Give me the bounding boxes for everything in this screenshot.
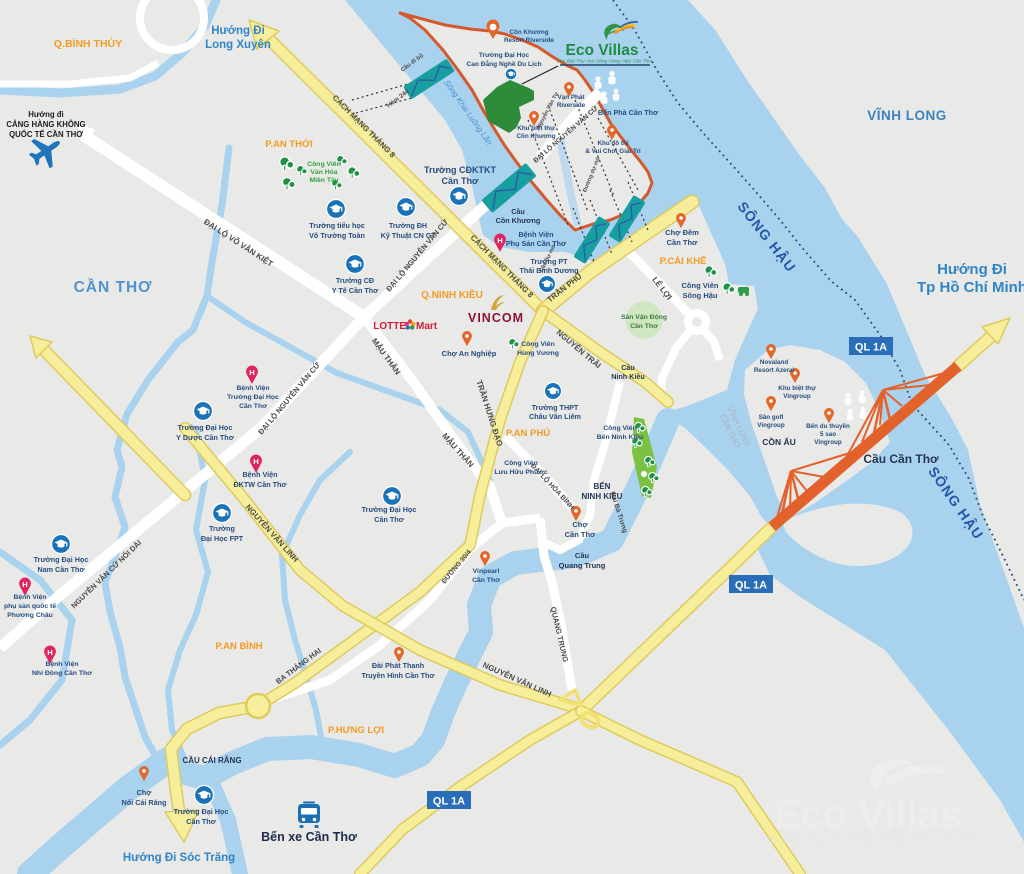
svg-text:Sân goflVingroup: Sân goflVingroup bbox=[757, 414, 785, 429]
svg-text:Mart: Mart bbox=[416, 321, 438, 332]
svg-text:QL 1A: QL 1A bbox=[433, 796, 465, 808]
svg-text:Trường tiểu họcVõ Trường Toàn: Trường tiểu họcVõ Trường Toàn bbox=[309, 221, 365, 240]
svg-text:P.AN PHÚ: P.AN PHÚ bbox=[506, 427, 550, 439]
svg-text:Bến Phà Cần Thơ: Bến Phà Cần Thơ bbox=[598, 108, 659, 117]
svg-text:Trường CĐY Tế Cần Thơ: Trường CĐY Tế Cần Thơ bbox=[332, 276, 379, 295]
svg-text:Cầu Cần Thơ: Cầu Cần Thơ bbox=[863, 452, 939, 466]
svg-text:P.CÁI KHẾ: P.CÁI KHẾ bbox=[660, 256, 707, 267]
svg-text:Chợ An Nghiệp: Chợ An Nghiệp bbox=[442, 349, 497, 358]
svg-text:Hướng Đi Sóc Trăng: Hướng Đi Sóc Trăng bbox=[123, 852, 235, 864]
svg-text:Vạn PhátRiverside: Vạn PhátRiverside bbox=[557, 94, 586, 109]
svg-text:Khu biệt thựVingroup: Khu biệt thựVingroup bbox=[778, 385, 816, 400]
svg-text:CỒN ẤU: CỒN ẤU bbox=[762, 436, 796, 447]
svg-text:LOTTE: LOTTE bbox=[373, 321, 406, 332]
svg-text:Công ViênSông Hậu: Công ViênSông Hậu bbox=[682, 281, 719, 300]
svg-text:Khu Biệt Thự Ven Sông Hàng Hiệ: Khu Biệt Thự Ven Sông Hàng Hiệu Cần Thơ bbox=[760, 834, 978, 846]
svg-text:Q.BÌNH THỦY: Q.BÌNH THỦY bbox=[54, 37, 122, 50]
svg-text:Bến xe Cần Thơ: Bến xe Cần Thơ bbox=[261, 830, 357, 844]
svg-text:Q.NINH KIỀU: Q.NINH KIỀU bbox=[421, 288, 483, 301]
svg-text:Eco Villas: Eco Villas bbox=[774, 793, 962, 837]
svg-text:Khu Biệt Thự Ven Sông Hàng Hiệ: Khu Biệt Thự Ven Sông Hàng Hiệu Cần Thơ bbox=[557, 59, 652, 65]
svg-text:QL 1A: QL 1A bbox=[735, 580, 767, 592]
svg-text:QL 1A: QL 1A bbox=[855, 342, 887, 354]
svg-text:Chợ ĐêmCần Thơ: Chợ ĐêmCần Thơ bbox=[665, 228, 699, 247]
svg-text:Công ViênVăn HóaMiền Tây: Công ViênVăn HóaMiền Tây bbox=[307, 161, 340, 184]
svg-text:CẦN THƠ: CẦN THƠ bbox=[74, 279, 153, 296]
svg-text:Eco Villas: Eco Villas bbox=[566, 42, 639, 59]
svg-text:Trường THPTChâu Văn Liêm: Trường THPTChâu Văn Liêm bbox=[529, 403, 581, 421]
svg-text:Cồn KhươngResort Riverside: Cồn KhươngResort Riverside bbox=[504, 27, 555, 44]
svg-text:CẦU CÁI RĂNG: CẦU CÁI RĂNG bbox=[182, 755, 241, 765]
svg-text:VINCOM: VINCOM bbox=[468, 311, 524, 325]
svg-text:VĨNH LONG: VĨNH LONG bbox=[867, 108, 947, 123]
svg-text:P.HƯNG LỢI: P.HƯNG LỢI bbox=[328, 725, 384, 736]
svg-text:P.AN THỚI: P.AN THỚI bbox=[265, 138, 313, 150]
svg-text:Trường Đại HọcNam Cần Thơ: Trường Đại HọcNam Cần Thơ bbox=[34, 555, 89, 574]
svg-text:P.AN BÌNH: P.AN BÌNH bbox=[215, 641, 262, 652]
svg-text:Trường Đại HọcY Dược Cần Thơ: Trường Đại HọcY Dược Cần Thơ bbox=[176, 423, 235, 442]
